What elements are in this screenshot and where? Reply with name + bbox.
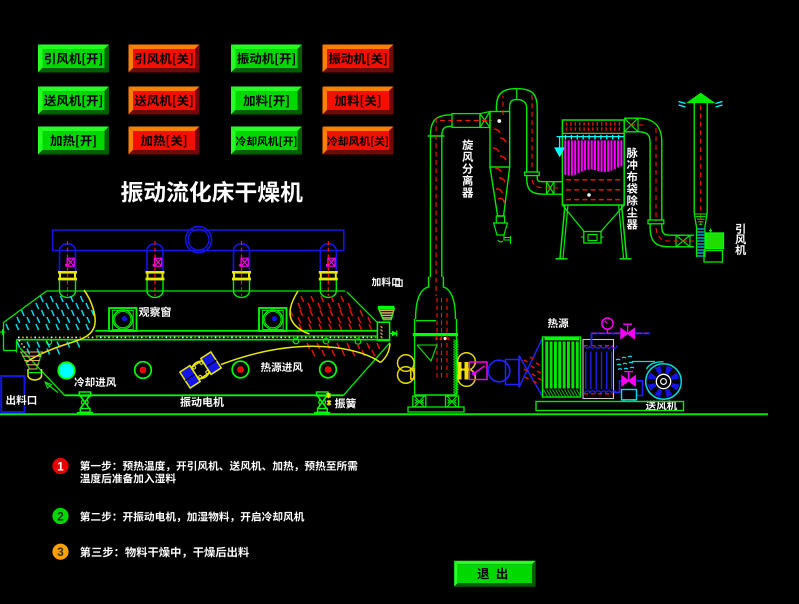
svg-text:2: 2 [57, 510, 64, 524]
svg-text:3: 3 [57, 545, 64, 559]
svg-text:1: 1 [57, 460, 64, 474]
